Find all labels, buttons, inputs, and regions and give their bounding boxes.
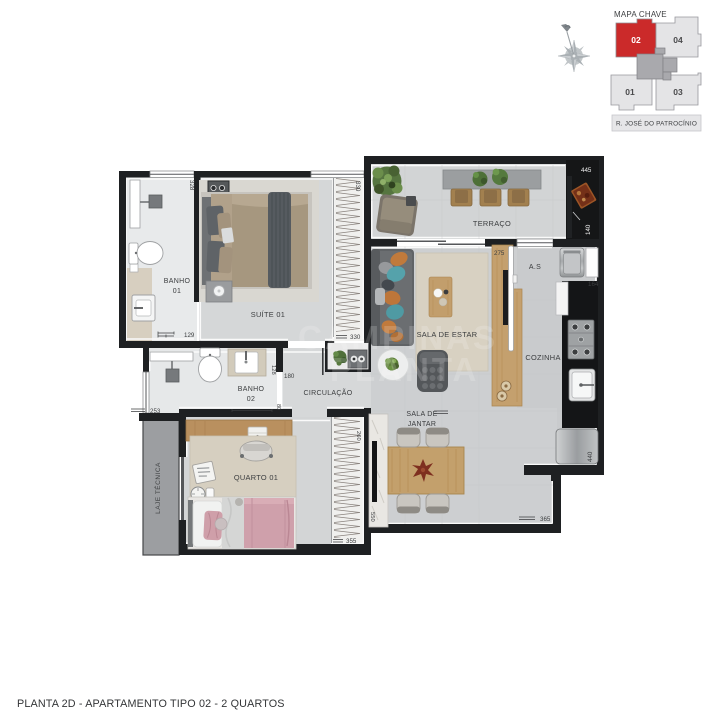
svg-text:SALA DE ESTAR: SALA DE ESTAR bbox=[417, 330, 478, 339]
svg-text:TERRAÇO: TERRAÇO bbox=[473, 219, 511, 228]
svg-text:445: 445 bbox=[581, 167, 592, 174]
svg-text:355: 355 bbox=[346, 538, 357, 545]
svg-text:COZINHA: COZINHA bbox=[525, 353, 560, 362]
svg-text:CIRCULAÇÃO: CIRCULAÇÃO bbox=[304, 388, 353, 397]
svg-text:QUARTO 01: QUARTO 01 bbox=[234, 473, 278, 482]
svg-text:328: 328 bbox=[188, 180, 195, 191]
svg-text:BANHO: BANHO bbox=[238, 386, 265, 393]
svg-text:253: 253 bbox=[150, 408, 161, 415]
svg-text:02: 02 bbox=[247, 396, 255, 403]
svg-text:JANTAR: JANTAR bbox=[408, 421, 437, 428]
svg-text:550: 550 bbox=[369, 512, 375, 522]
svg-text:365: 365 bbox=[540, 516, 551, 523]
svg-text:MAPA CHAVE: MAPA CHAVE bbox=[614, 10, 667, 19]
svg-text:R. JOSÉ DO PATROCÍNIO: R. JOSÉ DO PATROCÍNIO bbox=[616, 119, 697, 128]
svg-text:01: 01 bbox=[625, 87, 635, 97]
svg-text:SUÍTE 01: SUÍTE 01 bbox=[251, 310, 285, 319]
svg-text:02: 02 bbox=[631, 35, 641, 45]
svg-text:140: 140 bbox=[585, 224, 592, 235]
svg-text:180: 180 bbox=[284, 373, 295, 380]
svg-text:LAJE TÉCNICA: LAJE TÉCNICA bbox=[153, 462, 162, 514]
svg-text:04: 04 bbox=[673, 35, 683, 45]
svg-text:129: 129 bbox=[184, 332, 195, 339]
svg-text:164: 164 bbox=[588, 281, 599, 288]
svg-text:BANHO: BANHO bbox=[164, 278, 191, 285]
svg-text:330: 330 bbox=[354, 181, 361, 192]
svg-text:260: 260 bbox=[355, 431, 361, 441]
svg-text:01: 01 bbox=[173, 288, 181, 295]
svg-text:03: 03 bbox=[673, 87, 683, 97]
svg-text:440: 440 bbox=[587, 451, 594, 462]
svg-text:SALA DE: SALA DE bbox=[406, 411, 437, 418]
svg-text:128: 128 bbox=[270, 365, 276, 375]
svg-text:330: 330 bbox=[350, 334, 361, 341]
svg-text:PLANTA 2D - APARTAMENTO TIPO 0: PLANTA 2D - APARTAMENTO TIPO 02 - 2 QUAR… bbox=[17, 698, 285, 710]
svg-text:PLANTA: PLANTA bbox=[330, 351, 479, 388]
svg-text:80: 80 bbox=[275, 404, 281, 410]
svg-text:A.S: A.S bbox=[529, 264, 541, 271]
svg-text:275: 275 bbox=[494, 250, 505, 257]
